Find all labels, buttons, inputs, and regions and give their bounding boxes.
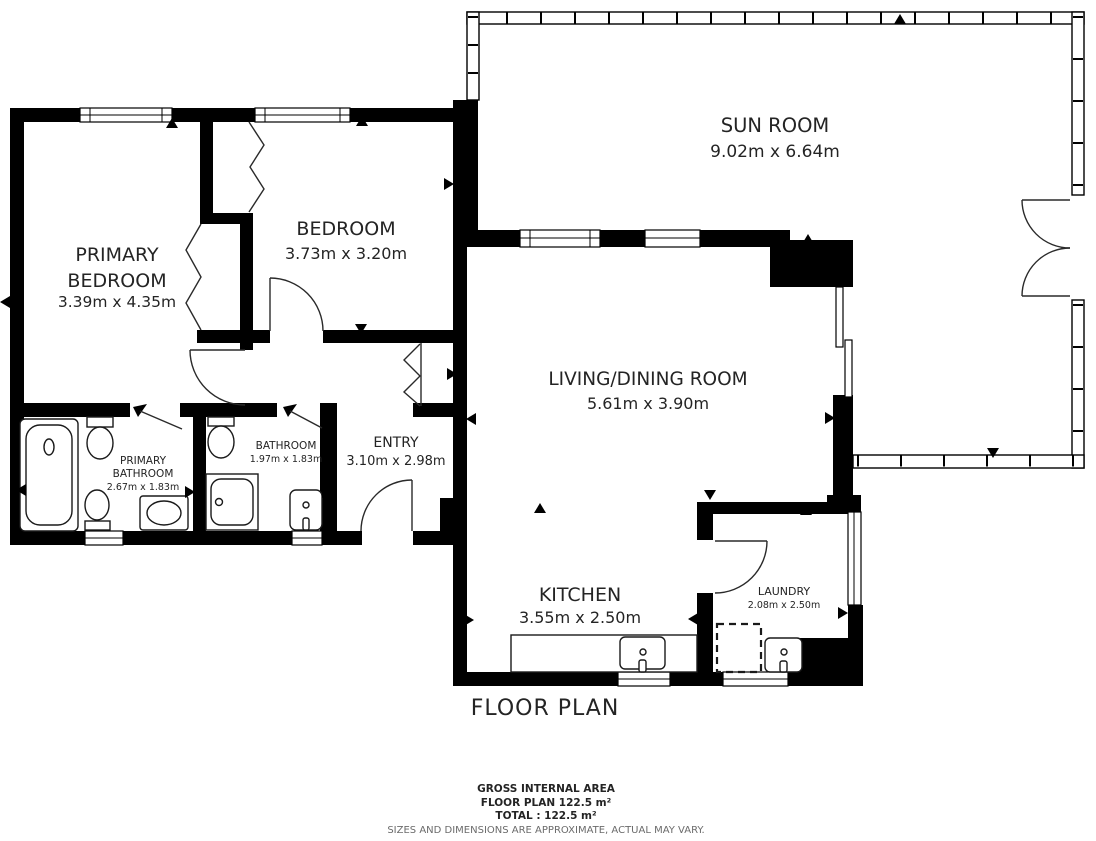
window-icon: [848, 512, 861, 605]
window-icon: [85, 531, 123, 545]
entry-dims: 3.10m x 2.98m: [346, 454, 445, 469]
window-icon: [292, 531, 322, 545]
toilet-icon: [208, 417, 234, 458]
primary-closet-bifold-icon: [186, 224, 201, 330]
living-dining-label: LIVING/DINING ROOM: [548, 369, 747, 390]
toilet-icon: [85, 490, 110, 530]
footer-disclaimer: SIZES AND DIMENSIONS ARE APPROXIMATE, AC…: [387, 825, 704, 836]
window-icon: [80, 108, 172, 122]
bedroom-closet-bifold-icon: [249, 122, 264, 212]
laundry-label: LAUNDRY: [758, 585, 811, 598]
sun-room-dims: 9.02m x 6.64m: [710, 142, 840, 162]
primary-bathroom-door-icon: [133, 404, 182, 429]
shower-icon: [206, 474, 258, 530]
vanity-sink-icon: [140, 496, 188, 530]
primary-bedroom-label-1: PRIMARY: [75, 244, 159, 266]
toilet-icon: [87, 417, 113, 459]
entry-front-door-icon: [361, 480, 412, 531]
walls: [10, 100, 863, 686]
primary-bathroom-label-1: PRIMARY: [120, 455, 167, 467]
kitchen-dims: 3.55m x 2.50m: [519, 608, 641, 627]
window-icon: [645, 230, 700, 247]
primary-bedroom-label-2: BEDROOM: [67, 270, 166, 292]
sliding-door-icon: [836, 287, 852, 397]
plan-title: FLOOR PLAN: [471, 696, 620, 721]
window-icon: [520, 230, 600, 247]
bedroom-dims: 3.73m x 3.20m: [285, 244, 407, 263]
captions: FLOOR PLAN GROSS INTERNAL AREA FLOOR PLA…: [387, 696, 704, 836]
footer-total-area: TOTAL : 122.5 m²: [495, 810, 597, 822]
laundry-dims: 2.08m x 2.50m: [748, 600, 820, 611]
bathroom-dims: 1.97m x 1.83m: [250, 454, 322, 465]
primary-bedroom-door-icon: [190, 350, 245, 405]
bathroom-sink-icon: [290, 490, 322, 530]
sun-room-label: SUN ROOM: [721, 114, 830, 137]
living-dining-dims: 5.61m x 3.90m: [587, 394, 709, 413]
floor-plan-page: SUN ROOM 9.02m x 6.64m PRIMARY BEDROOM 3…: [0, 0, 1096, 841]
french-doors-icon: [1022, 200, 1070, 296]
window-icon: [723, 672, 788, 686]
laundry-sink-icon: [765, 638, 802, 672]
primary-bathroom-dims: 2.67m x 1.83m: [107, 482, 179, 493]
bathroom-door-icon: [283, 404, 322, 428]
kitchen-label: KITCHEN: [539, 584, 621, 606]
washer-space-icon: [717, 624, 761, 672]
floor-plan-drawing: SUN ROOM 9.02m x 6.64m PRIMARY BEDROOM 3…: [0, 0, 1096, 841]
doors: [133, 122, 1070, 593]
bathtub-icon: [20, 419, 78, 531]
bedroom-label: BEDROOM: [296, 218, 395, 240]
kitchen-sink-icon: [620, 637, 665, 672]
bedroom-door-icon: [270, 278, 323, 331]
bathroom-label: BATHROOM: [256, 440, 317, 452]
footer-floorplan-area: FLOOR PLAN 122.5 m²: [481, 797, 612, 809]
primary-bedroom-dims: 3.39m x 4.35m: [58, 293, 176, 311]
kitchen-counter: [511, 635, 697, 672]
window-icon: [255, 108, 350, 122]
entry-closet-bifold-icon: [404, 343, 421, 406]
primary-bathroom-label-2: BATHROOM: [113, 468, 174, 480]
window-icon: [618, 672, 670, 686]
entry-label: ENTRY: [373, 435, 419, 451]
footer-area-heading: GROSS INTERNAL AREA: [477, 783, 616, 795]
